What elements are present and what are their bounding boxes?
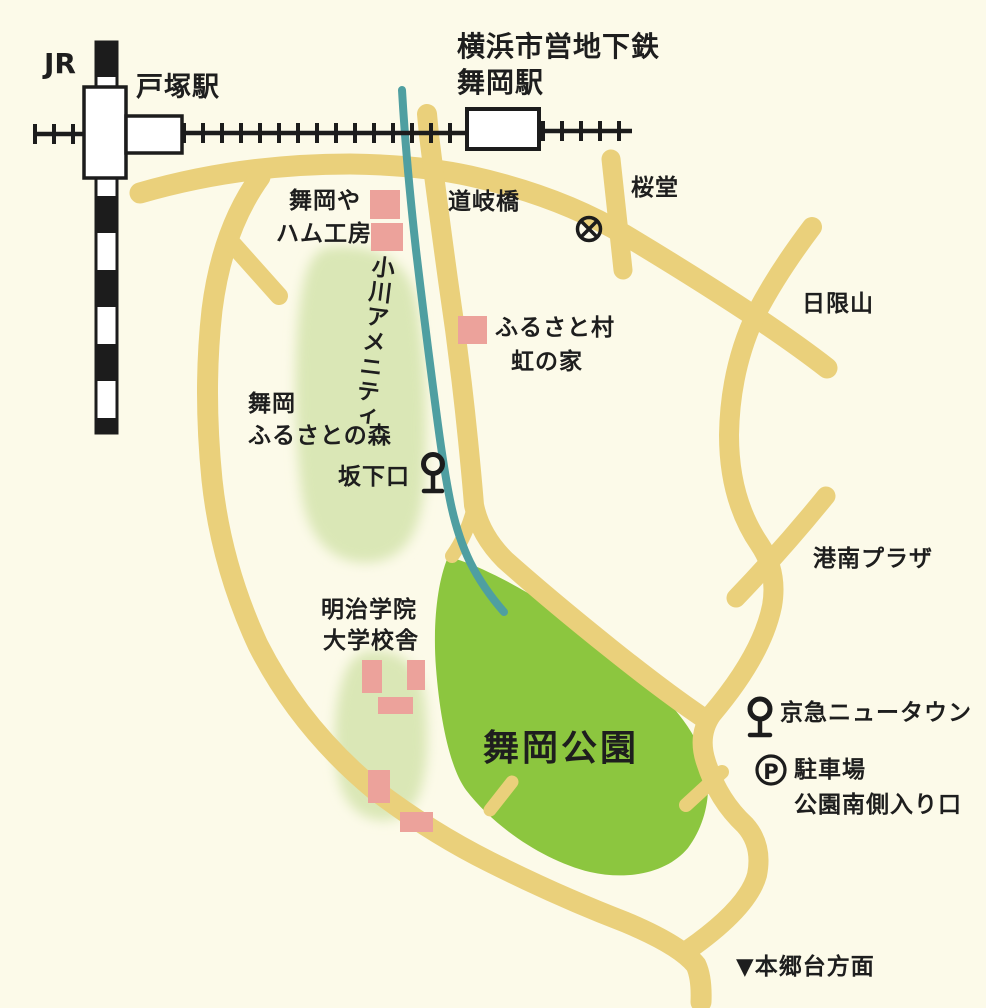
meiji-building xyxy=(362,660,382,693)
maioka-park-label: 舞岡公園 xyxy=(483,731,639,767)
niji-no-ie-building xyxy=(458,316,487,344)
kounan-plaza-label: 港南プラザ xyxy=(813,548,933,571)
parking-label: 駐車場 xyxy=(794,759,866,782)
hongodai-direction-label: ▼本郷台方面 xyxy=(736,956,875,979)
michimata-bridge-label: 道岐橋 xyxy=(448,191,520,214)
jr-line-stripe xyxy=(96,344,117,381)
maioka-station-label: 舞岡駅 xyxy=(457,69,544,97)
meiji-building xyxy=(407,660,425,690)
jr-line-stripe xyxy=(96,196,117,233)
maioka-station-box xyxy=(467,109,539,149)
road-sakuradou-spur xyxy=(611,159,623,270)
totsuka-station-box xyxy=(84,87,126,178)
meiji-gakuin-label-line1: 明治学院 xyxy=(321,599,417,622)
map-canvas: P xyxy=(0,0,986,1008)
meiji-gakuin-label-line2: 大学校舎 xyxy=(323,630,419,653)
totsuka-station-label: 戸塚駅 xyxy=(136,74,220,101)
higiriyama-label: 日限山 xyxy=(802,293,874,316)
keikyu-newtown-label: 京急ニュータウン xyxy=(780,702,972,725)
jr-label: JR xyxy=(44,50,76,78)
totsuka-station-box-east xyxy=(126,116,182,153)
maioka-park-access-map: P JR 戸塚駅 横浜市営地下鉄 舞岡駅 道岐橋 桜堂 舞岡や ハム工房 小川ア… xyxy=(0,0,986,1008)
sakashita-entrance-label: 坂下口 xyxy=(338,466,410,489)
maioka-forest-label-line1: 舞岡 xyxy=(248,393,296,416)
sakuradou-label: 桜堂 xyxy=(631,177,679,200)
jr-line-stripe xyxy=(96,418,117,433)
maiokaya-building xyxy=(370,190,400,219)
furusato-village-label: ふるさと村 xyxy=(495,317,615,340)
ham-workshop-label: ハム工房 xyxy=(276,223,372,246)
meiji-building xyxy=(400,812,433,832)
niji-no-ie-label: 虹の家 xyxy=(511,351,583,374)
jr-line-stripe xyxy=(96,270,117,307)
maioka-forest-label-line2: ふるさとの森 xyxy=(248,425,392,448)
meiji-building xyxy=(368,770,390,803)
maiokaya-label: 舞岡や xyxy=(289,190,361,213)
ham-workshop-building xyxy=(371,223,403,251)
meiji-building xyxy=(378,697,413,714)
subway-company-label: 横浜市営地下鉄 xyxy=(457,33,660,61)
park-south-entrance-label: 公園南側入り口 xyxy=(794,794,962,817)
parking-icon-letter: P xyxy=(763,760,778,784)
jr-line-stripe xyxy=(96,42,117,77)
